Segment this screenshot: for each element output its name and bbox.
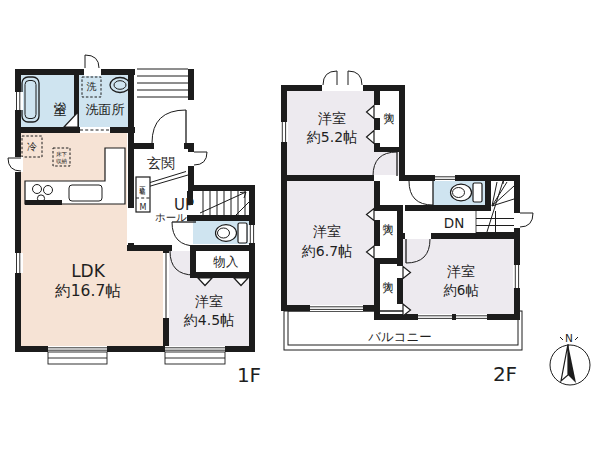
closet-top-label: 物入 <box>383 104 396 125</box>
closet-low-label: 物入 <box>382 273 395 294</box>
ldk-size-label: 約16.7帖 <box>54 282 121 300</box>
toilet2f-door-arc <box>409 181 433 205</box>
bedroom45-size-label: 約4.5帖 <box>184 312 234 328</box>
ldk-label: LDK <box>71 261 106 281</box>
compass-icon: N <box>550 332 590 385</box>
stairs-1f <box>200 191 253 215</box>
floor-label-2f: 2F <box>493 362 517 386</box>
compass-needle <box>568 344 576 383</box>
washer-label: 洗 <box>87 81 97 92</box>
dn-label: DN <box>444 215 465 231</box>
bedroom52-label: 洋室 <box>318 110 346 126</box>
bedroom67-size-label: 約6.7帖 <box>302 243 352 259</box>
bedroom6-label: 洋室 <box>447 263 475 279</box>
entrance-label: 玄関 <box>147 155 175 171</box>
room-ldk-lower <box>127 251 163 346</box>
floor-plan: 浴室 洗 洗面所 冷 床下 収納 玄関 下駄箱 M UP ホール 物入 LDK … <box>0 0 600 450</box>
bedroom6-size-label: 約6帖 <box>443 282 479 298</box>
closet-label-1f: 物入 <box>213 254 240 269</box>
meter-label: M <box>140 203 147 212</box>
north-label: N <box>565 332 573 344</box>
floor-1f: 浴室 洗 洗面所 冷 床下 収納 玄関 下駄箱 M UP ホール 物入 LDK … <box>8 55 261 387</box>
floor-storage-label-2: 収納 <box>56 158 67 164</box>
fridge-label: 冷 <box>27 141 37 152</box>
closet-mid-label: 物入 <box>382 215 395 236</box>
floor-storage-label-1: 床下 <box>56 151 68 157</box>
washroom-label: 洗面所 <box>86 102 125 117</box>
room-bath <box>21 75 74 127</box>
balcony-label: バルコニー <box>367 329 432 344</box>
room-bedroom-52-notch <box>374 152 399 175</box>
front-door-arc <box>152 110 186 143</box>
floor-label-1f: 1F <box>237 363 261 387</box>
toilet-icon <box>451 183 483 202</box>
floor-2f: 洋室 約5.2帖 物入 洋室 約6.7帖 物入 物入 洋室 約6帖 DN バルコ… <box>280 71 533 386</box>
bedroom52-size-label: 約5.2帖 <box>307 129 357 145</box>
hall-label: ホール <box>155 211 187 223</box>
bedroom67-label: 洋室 <box>313 223 341 239</box>
toilet-icon <box>216 223 248 243</box>
porch-steps <box>137 69 188 97</box>
bedroom45-label: 洋室 <box>195 293 223 309</box>
toilet-door-arc <box>172 222 196 246</box>
